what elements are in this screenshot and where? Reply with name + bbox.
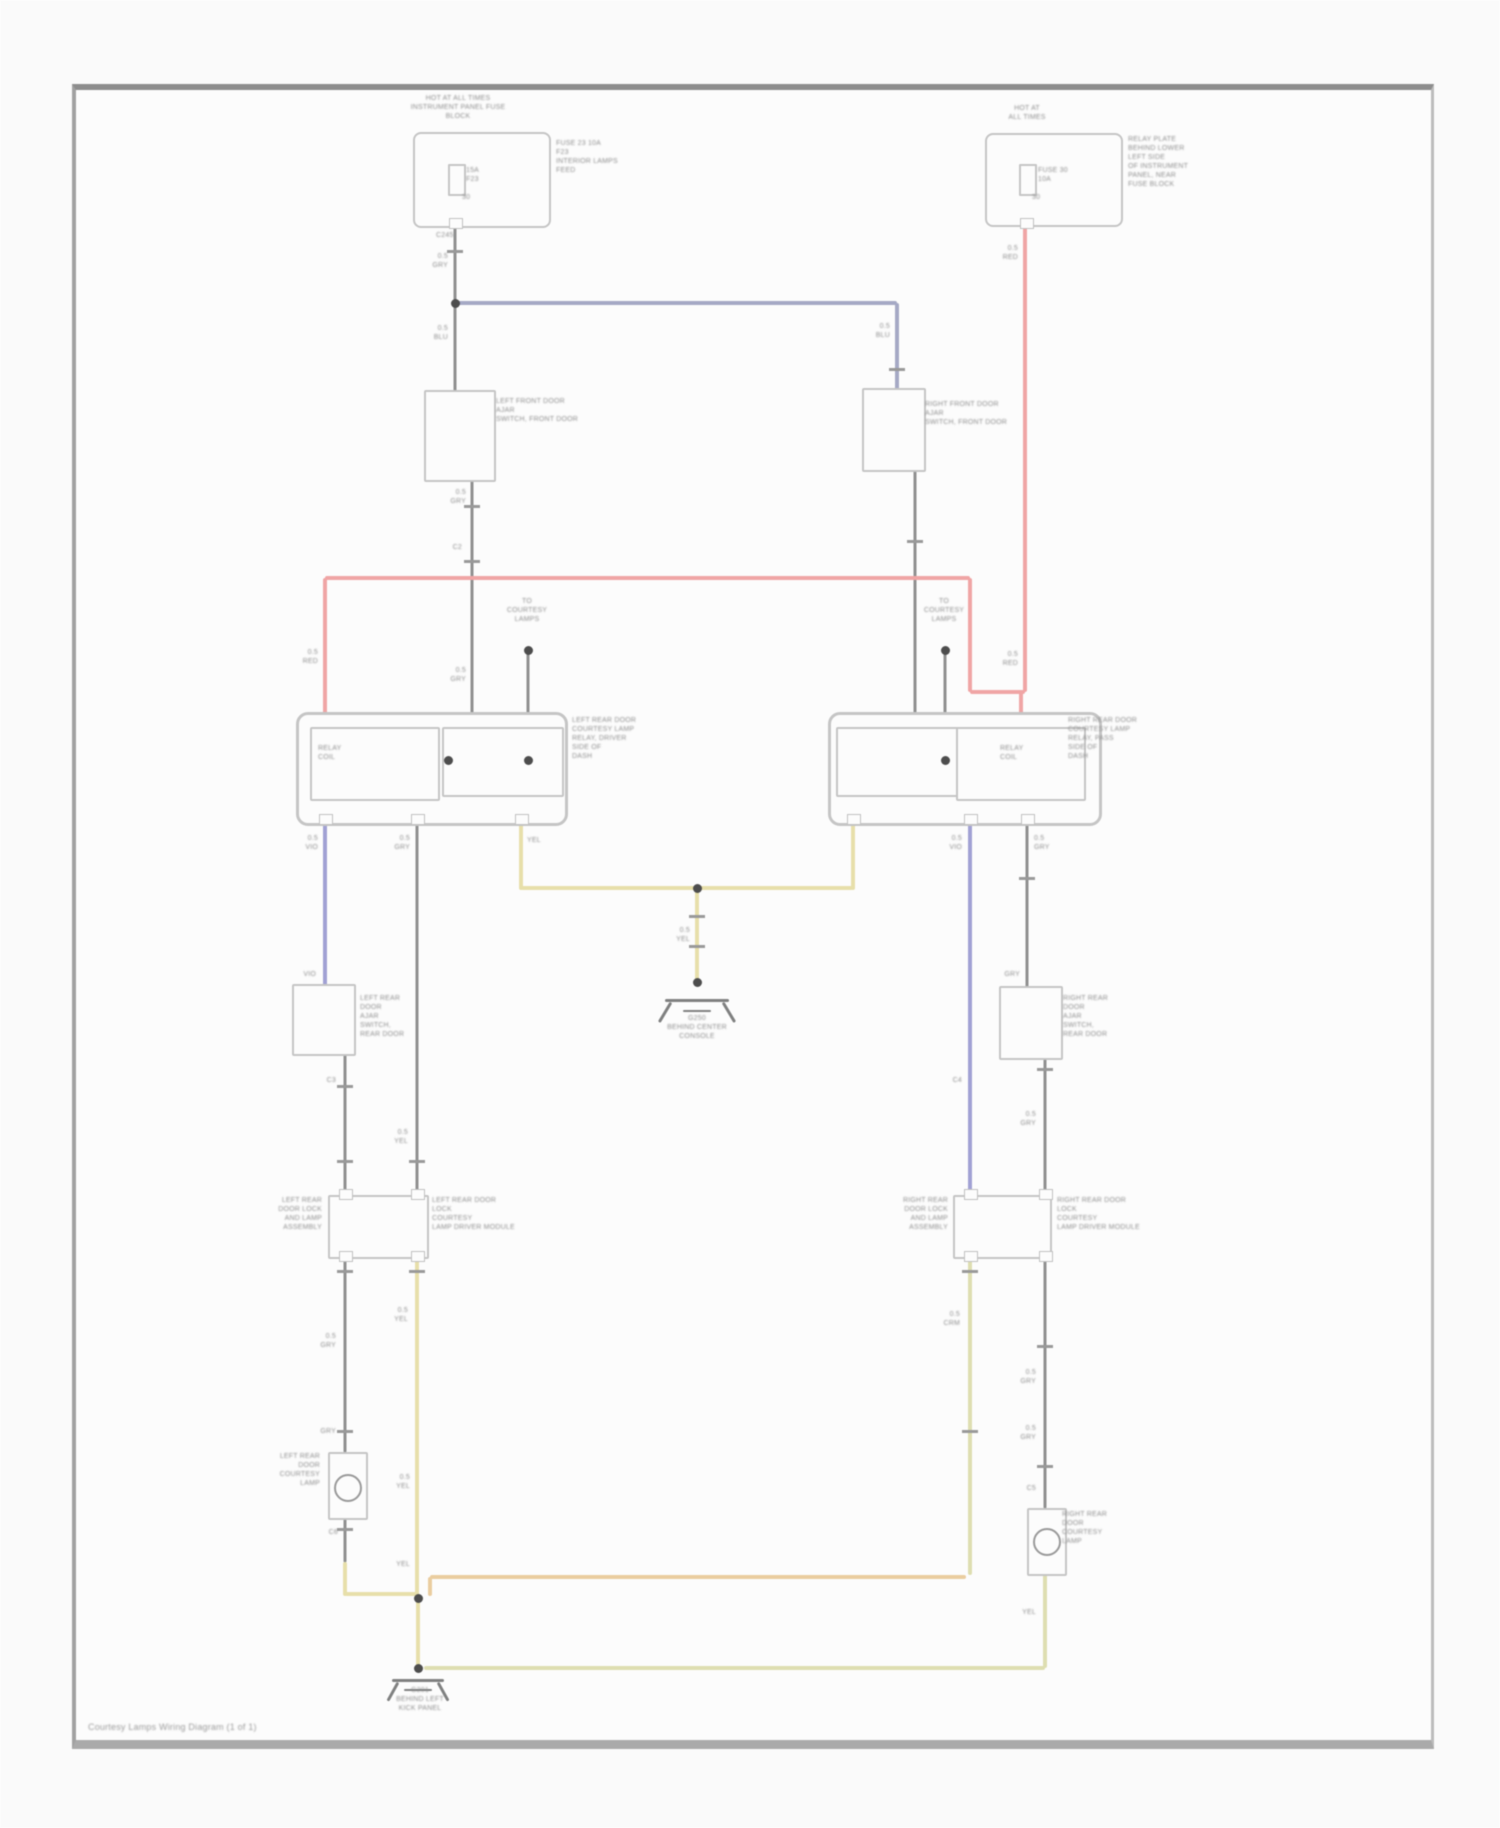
connector-tick xyxy=(409,1160,425,1163)
label-line: COURTESY xyxy=(280,1470,320,1479)
connector-tick xyxy=(337,1430,353,1433)
component-box-right-rear-door-switch-box xyxy=(999,986,1063,1060)
label-line: RIGHT REAR DOOR xyxy=(1057,1196,1140,1205)
diagram-label: 0.5YEL xyxy=(394,1128,408,1146)
diagram-label: LEFT REARDOOR LOCKAND LAMPASSEMBLY xyxy=(278,1196,322,1232)
label-line: INTERIOR LAMPS xyxy=(556,157,618,166)
label-line: GRY xyxy=(1034,843,1050,852)
label-line: GRY xyxy=(394,843,410,852)
label-line: VIO xyxy=(305,843,318,852)
label-line: COURTESY LAMP xyxy=(1068,725,1137,734)
diagram-label: C6 xyxy=(329,1528,338,1537)
connector-tick xyxy=(337,1085,353,1088)
junction-dot xyxy=(693,978,702,987)
label-line: BEHIND CENTER xyxy=(667,1023,727,1032)
diagram-label: LEFT REARDOORAJARSWITCH,REAR DOOR xyxy=(360,994,404,1039)
diagram-label: GRY xyxy=(320,1427,336,1436)
label-line: DOOR LOCK xyxy=(278,1205,322,1214)
terminal-nub xyxy=(339,1251,353,1262)
connector-tick xyxy=(447,250,463,253)
label-line: G250 xyxy=(667,1014,727,1023)
diagram-label: 0.5VIO xyxy=(305,834,318,852)
label-line: C245 xyxy=(436,231,454,240)
label-line: 15A xyxy=(466,166,479,175)
wire-yellow xyxy=(521,886,853,890)
diagram-label: LEFT REAR DOORLOCKCOURTESYLAMP DRIVER MO… xyxy=(432,1196,515,1232)
terminal-nub xyxy=(411,1251,425,1262)
diagram-label: RIGHT REARDOORCOURTESYLAMP xyxy=(1062,1510,1107,1546)
terminal-nub xyxy=(1039,1251,1053,1262)
label-line: RELAY PLATE xyxy=(1128,135,1188,144)
label-line: YEL xyxy=(676,935,690,944)
wire-gray xyxy=(344,1516,347,1562)
label-line: COURTESY LAMP xyxy=(572,725,636,734)
terminal-nub xyxy=(964,1251,978,1262)
wire-blue xyxy=(895,303,899,392)
label-line: 0.5 xyxy=(1003,650,1018,659)
label-line: AND LAMP xyxy=(903,1214,948,1223)
wire-red xyxy=(323,578,327,714)
connector-tick xyxy=(1037,1465,1053,1468)
label-line: SWITCH, xyxy=(360,1021,404,1030)
connector-tick xyxy=(889,368,905,371)
label-line: LAMP xyxy=(280,1479,320,1488)
diagram-label: 0.5GRY xyxy=(1020,1424,1036,1442)
wire-red xyxy=(325,576,970,580)
label-line: FUSE 30 xyxy=(1038,166,1068,175)
wire-gray xyxy=(454,224,457,303)
label-line: HOT AT xyxy=(1008,104,1045,113)
label-line: TO xyxy=(507,597,547,606)
label-line: 0.5 xyxy=(949,834,962,843)
junction-dot xyxy=(524,756,533,765)
label-line: DOOR xyxy=(1063,1003,1108,1012)
label-line: YEL xyxy=(1022,1608,1036,1617)
label-line: RIGHT REAR xyxy=(1062,1510,1107,1519)
component-box-left-rear-door-switch-box xyxy=(292,984,356,1056)
label-line: RELAY, PASS xyxy=(1068,734,1137,743)
label-line: COIL xyxy=(318,753,341,762)
label-line: AJAR xyxy=(360,1012,404,1021)
diagram-label: 0.5GRY xyxy=(1020,1110,1036,1128)
label-line: 0.5 xyxy=(320,1332,336,1341)
diagram-label: RELAYCOIL xyxy=(318,744,341,762)
label-line: AJAR xyxy=(496,406,578,415)
connector-tick xyxy=(464,505,480,508)
label-line: 0.5 xyxy=(876,322,890,331)
connector-tick xyxy=(689,915,705,918)
label-line: LEFT REAR xyxy=(278,1196,322,1205)
diagram-label: 30 xyxy=(462,193,470,202)
connector-tick xyxy=(464,560,480,563)
diagram-label: YEL xyxy=(1022,1608,1036,1617)
label-line: GRY xyxy=(1004,970,1020,979)
label-line: DOOR xyxy=(280,1461,320,1470)
component-box-fuse-block-box xyxy=(413,132,551,228)
diagram-label: 0.5GRY xyxy=(1020,1368,1036,1386)
diagram-label: 0.5CRM xyxy=(943,1310,960,1328)
diagram-label: 0.5GRY xyxy=(450,666,466,684)
label-line: LAMP DRIVER MODULE xyxy=(432,1223,515,1232)
diagram-label: C245 xyxy=(436,231,454,240)
junction-dot xyxy=(693,884,702,893)
component-box-right-door-module-box xyxy=(953,1195,1052,1259)
connector-tick xyxy=(689,945,705,948)
diagram-label: C5 xyxy=(1027,1484,1036,1493)
diagram-label: 0.5RED xyxy=(1003,650,1018,668)
label-line: GRY xyxy=(1020,1119,1036,1128)
label-line: SWITCH, FRONT DOOR xyxy=(496,415,578,424)
label-line: DASH xyxy=(1068,752,1137,761)
diagram-label: 0.5RED xyxy=(303,648,318,666)
label-line: C2 xyxy=(453,543,462,552)
terminal-nub xyxy=(1021,814,1035,825)
terminal-nub xyxy=(964,1189,978,1200)
label-line: BEHIND LEFT xyxy=(396,1695,444,1704)
label-line: HOT AT ALL TIMES xyxy=(411,94,506,103)
wire-cream xyxy=(1043,1572,1047,1668)
terminal-nub xyxy=(1020,218,1034,229)
wire-red xyxy=(1023,224,1027,692)
label-line: C6 xyxy=(329,1528,338,1537)
label-line: RIGHT FRONT DOOR xyxy=(925,400,1007,409)
component-box-fuse-left xyxy=(448,164,466,196)
diagram-label: YEL xyxy=(527,836,541,845)
wire-gray xyxy=(416,820,419,1195)
label-line: C5 xyxy=(1027,1484,1036,1493)
label-line: 0.5 xyxy=(432,252,448,261)
label-line: C4 xyxy=(953,1076,962,1085)
label-line: COIL xyxy=(1000,753,1023,762)
label-line: GRY xyxy=(1020,1377,1036,1386)
diagram-label: 0.5GRY xyxy=(450,488,466,506)
diagram-label: 0.5GRY xyxy=(394,834,410,852)
wire-cream xyxy=(424,1666,1045,1670)
terminal-nub xyxy=(411,1189,425,1200)
label-line: 30 xyxy=(462,193,470,202)
label-line: ALL TIMES xyxy=(1008,113,1045,122)
label-line: BEHIND LOWER xyxy=(1128,144,1188,153)
wire-yellow xyxy=(343,1562,347,1596)
component-box-left-front-door-switch-box xyxy=(424,390,496,482)
label-line: LEFT REAR DOOR xyxy=(572,716,636,725)
lamp-bulb-icon xyxy=(334,1474,362,1502)
diagram-label: RIGHT REARDOOR LOCKAND LAMPASSEMBLY xyxy=(903,1196,948,1232)
label-line: DOOR xyxy=(360,1003,404,1012)
label-line: LAMPS xyxy=(507,615,547,624)
diagram-label: 0.5GRY xyxy=(1034,834,1050,852)
wire-gray xyxy=(344,1255,347,1452)
junction-dot xyxy=(414,1594,423,1603)
lamp-bulb-icon xyxy=(1033,1528,1061,1556)
label-line: YEL xyxy=(527,836,541,845)
wire-yellow xyxy=(519,820,523,890)
label-line: VIO xyxy=(949,843,962,852)
label-line: FUSE 23 10A xyxy=(556,139,618,148)
label-line: 0.5 xyxy=(1020,1368,1036,1377)
wire-red xyxy=(1019,692,1023,714)
component-box-left-relay-coil-box xyxy=(310,727,440,801)
wire-yellow xyxy=(695,888,699,982)
diagram-label: HOT ATALL TIMES xyxy=(1008,104,1045,122)
wire-amber xyxy=(430,1575,966,1579)
label-line: 0.5 xyxy=(943,1310,960,1319)
terminal-nub xyxy=(847,814,861,825)
diagram-label: 0.5YEL xyxy=(676,926,690,944)
component-box-left-relay-switch-box xyxy=(442,727,564,797)
wire-yellow xyxy=(851,820,855,890)
diagram-label: G250BEHIND CENTERCONSOLE xyxy=(667,1014,727,1041)
diagram-label: 0.5YEL xyxy=(394,1306,408,1324)
label-line: 0.5 xyxy=(394,1128,408,1137)
label-line: AJAR xyxy=(925,409,1007,418)
component-box-right-front-door-switch-box xyxy=(862,388,926,472)
label-line: LOCK xyxy=(1057,1205,1140,1214)
label-line: RIGHT REAR xyxy=(1063,994,1108,1003)
wiring-diagram-page: HOT AT ALL TIMESINSTRUMENT PANEL FUSEBLO… xyxy=(0,0,1500,1828)
diagram-label: LEFT FRONT DOORAJARSWITCH, FRONT DOOR xyxy=(496,397,578,424)
label-line: GRY xyxy=(1020,1433,1036,1442)
label-line: TO xyxy=(924,597,964,606)
diagram-label: HOT AT ALL TIMESINSTRUMENT PANEL FUSEBLO… xyxy=(411,94,506,121)
label-line: CRM xyxy=(943,1319,960,1328)
diagram-label: RIGHT REAR DOORCOURTESY LAMPRELAY, PASSS… xyxy=(1068,716,1137,761)
label-line: 0.5 xyxy=(394,834,410,843)
diagram-label: C2 xyxy=(453,543,462,552)
wire-red xyxy=(970,690,1025,694)
label-line: LAMP DRIVER MODULE xyxy=(1057,1223,1140,1232)
label-line: 0.5 xyxy=(1034,834,1050,843)
junction-dot xyxy=(444,756,453,765)
label-line: FUSE BLOCK xyxy=(1128,180,1188,189)
label-line: COURTESY xyxy=(924,606,964,615)
label-line: GRY xyxy=(432,261,448,270)
label-line: DOOR xyxy=(1062,1519,1107,1528)
terminal-nub xyxy=(449,218,463,229)
label-line: 0.5 xyxy=(450,488,466,497)
junction-dot xyxy=(451,299,460,308)
label-line: GRY xyxy=(320,1341,336,1350)
label-line: VIO xyxy=(303,970,316,979)
diagram-label: TOCOURTESYLAMPS xyxy=(507,597,547,624)
label-line: GRY xyxy=(450,675,466,684)
label-line: RED xyxy=(1003,659,1018,668)
label-line: SIDE OF xyxy=(1068,743,1137,752)
wire-yellow xyxy=(415,1255,419,1598)
connector-tick xyxy=(337,1528,353,1531)
label-line: LEFT REAR xyxy=(360,994,404,1003)
label-line: BLU xyxy=(876,331,890,340)
diagram-label: C3 xyxy=(327,1076,336,1085)
label-line: KICK PANEL xyxy=(396,1704,444,1713)
diagram-label: 0.5GRY xyxy=(432,252,448,270)
wire-gray xyxy=(1044,1255,1047,1508)
label-line: LOCK xyxy=(432,1205,515,1214)
label-line: RELAY xyxy=(318,744,341,753)
label-line: CONSOLE xyxy=(667,1032,727,1041)
wire-gray xyxy=(1026,820,1029,988)
wire-gray xyxy=(527,652,530,714)
label-line: GRY xyxy=(320,1427,336,1436)
diagram-label: 30 xyxy=(1032,193,1040,202)
label-line: GRY xyxy=(450,497,466,506)
wire-blue xyxy=(455,301,897,305)
junction-dot xyxy=(941,646,950,655)
component-box-fuse-right xyxy=(1019,164,1037,196)
label-line: LAMP xyxy=(1062,1537,1107,1546)
label-line: 0.5 xyxy=(676,926,690,935)
label-line: YEL xyxy=(396,1560,410,1569)
label-line: G201 xyxy=(396,1686,444,1695)
terminal-nub xyxy=(515,814,529,825)
label-line: RED xyxy=(303,657,318,666)
terminal-nub xyxy=(964,814,978,825)
diagram-label: RIGHT FRONT DOORAJARSWITCH, FRONT DOOR xyxy=(925,400,1007,427)
label-line: BLU xyxy=(434,333,448,342)
label-line: DASH xyxy=(572,752,636,761)
label-line: LEFT SIDE xyxy=(1128,153,1188,162)
label-line: YEL xyxy=(394,1315,408,1324)
label-line: LAMPS xyxy=(924,615,964,624)
label-line: C3 xyxy=(327,1076,336,1085)
label-line: 0.5 xyxy=(434,324,448,333)
wire-yellow xyxy=(416,1598,420,1668)
label-line: AJAR xyxy=(1063,1012,1108,1021)
terminal-nub xyxy=(411,814,425,825)
label-line: FEED xyxy=(556,166,618,175)
connector-tick xyxy=(962,1270,978,1273)
diagram-label: LEFT REAR DOORCOURTESY LAMPRELAY, DRIVER… xyxy=(572,716,636,761)
label-line: LEFT REAR xyxy=(280,1452,320,1461)
label-line: F23 xyxy=(466,175,479,184)
label-line: YEL xyxy=(396,1482,410,1491)
terminal-nub xyxy=(1039,1189,1053,1200)
label-line: OF INSTRUMENT xyxy=(1128,162,1188,171)
label-line: 0.5 xyxy=(303,648,318,657)
label-line: F23 xyxy=(556,148,618,157)
connector-tick xyxy=(1019,877,1035,880)
diagram-label: FUSE 23 10AF23INTERIOR LAMPSFEED xyxy=(556,139,618,175)
wire-blade xyxy=(683,1010,711,1012)
label-line: ASSEMBLY xyxy=(903,1223,948,1232)
diagram-label: 0.5GRY xyxy=(320,1332,336,1350)
label-line: 0.5 xyxy=(305,834,318,843)
wire-blade xyxy=(392,1679,444,1682)
component-box-left-door-module-box xyxy=(328,1195,429,1259)
label-line: REAR DOOR xyxy=(360,1030,404,1039)
wire-gray xyxy=(471,460,474,714)
label-line: RIGHT REAR DOOR xyxy=(1068,716,1137,725)
label-line: 0.5 xyxy=(450,666,466,675)
diagram-label: FUSE 3010A xyxy=(1038,166,1068,184)
connector-tick xyxy=(337,1160,353,1163)
diagram-label: VIO xyxy=(303,970,316,979)
diagram-label: RIGHT REARDOORAJARSWITCH,REAR DOOR xyxy=(1063,994,1108,1039)
label-line: 30 xyxy=(1032,193,1040,202)
connector-tick xyxy=(1037,1068,1053,1071)
connector-tick xyxy=(337,1270,353,1273)
junction-dot xyxy=(524,646,533,655)
connector-tick xyxy=(907,540,923,543)
wire-cream xyxy=(968,1255,972,1575)
diagram-label: G201BEHIND LEFTKICK PANEL xyxy=(396,1686,444,1713)
label-line: RED xyxy=(1003,253,1018,262)
diagram-label: 0.5BLU xyxy=(876,322,890,340)
label-line: BLOCK xyxy=(411,112,506,121)
label-line: LEFT FRONT DOOR xyxy=(496,397,578,406)
label-line: AND LAMP xyxy=(278,1214,322,1223)
label-line: COURTESY xyxy=(1062,1528,1107,1537)
label-line: SWITCH, xyxy=(1063,1021,1108,1030)
wire-gray xyxy=(454,303,457,398)
label-line: SWITCH, FRONT DOOR xyxy=(925,418,1007,427)
label-line: RIGHT REAR xyxy=(903,1196,948,1205)
label-line: RELAY, DRIVER xyxy=(572,734,636,743)
diagram-label: RELAY PLATEBEHIND LOWERLEFT SIDEOF INSTR… xyxy=(1128,135,1188,189)
wire-violet xyxy=(323,820,327,986)
wire-amber xyxy=(428,1577,432,1596)
label-line: COURTESY xyxy=(1057,1214,1140,1223)
wire-violet xyxy=(968,820,972,1195)
wire-blade xyxy=(665,999,729,1002)
diagram-label: GRY xyxy=(1004,970,1020,979)
diagram-label: RELAYCOIL xyxy=(1000,744,1023,762)
wire-gray xyxy=(344,1050,347,1195)
label-line: 0.5 xyxy=(396,1473,410,1482)
diagram-frame xyxy=(72,84,1434,1749)
diagram-label: 0.5VIO xyxy=(949,834,962,852)
diagram-label: 0.5BLU xyxy=(434,324,448,342)
diagram-label: LEFT REARDOORCOURTESYLAMP xyxy=(280,1452,320,1488)
diagram-label: 0.5RED xyxy=(1003,244,1018,262)
component-box-right-relay-coil-box xyxy=(956,727,1086,801)
wire-gray xyxy=(1044,1055,1047,1195)
junction-dot xyxy=(941,756,950,765)
connector-tick xyxy=(962,1430,978,1433)
label-line: PANEL, NEAR xyxy=(1128,171,1188,180)
diagram-label: RIGHT REAR DOORLOCKCOURTESYLAMP DRIVER M… xyxy=(1057,1196,1140,1232)
terminal-nub xyxy=(319,814,333,825)
label-line: 10A xyxy=(1038,175,1068,184)
label-line: 0.5 xyxy=(1003,244,1018,253)
label-line: YEL xyxy=(394,1137,408,1146)
junction-dot xyxy=(414,1664,423,1673)
diagram-label: 15AF23 xyxy=(466,166,479,184)
caption: Courtesy Lamps Wiring Diagram (1 of 1) xyxy=(88,1722,257,1733)
label-line: 0.5 xyxy=(394,1306,408,1315)
wire-gray xyxy=(944,652,947,714)
diagram-label: YEL xyxy=(396,1560,410,1569)
connector-tick xyxy=(1037,1345,1053,1348)
label-line: COURTESY xyxy=(507,606,547,615)
diagram-label: 0.5YEL xyxy=(396,1473,410,1491)
label-line: DOOR LOCK xyxy=(903,1205,948,1214)
terminal-nub xyxy=(339,1189,353,1200)
wire-red xyxy=(968,578,972,692)
label-line: LEFT REAR DOOR xyxy=(432,1196,515,1205)
label-line: INSTRUMENT PANEL FUSE xyxy=(411,103,506,112)
connector-tick xyxy=(409,1270,425,1273)
label-line: 0.5 xyxy=(1020,1110,1036,1119)
wire-gray xyxy=(914,456,917,714)
label-line: RELAY xyxy=(1000,744,1023,753)
label-line: SIDE OF xyxy=(572,743,636,752)
wire-yellow xyxy=(345,1592,418,1596)
label-line: ASSEMBLY xyxy=(278,1223,322,1232)
label-line: 0.5 xyxy=(1020,1424,1036,1433)
label-line: REAR DOOR xyxy=(1063,1030,1108,1039)
diagram-label: C4 xyxy=(953,1076,962,1085)
